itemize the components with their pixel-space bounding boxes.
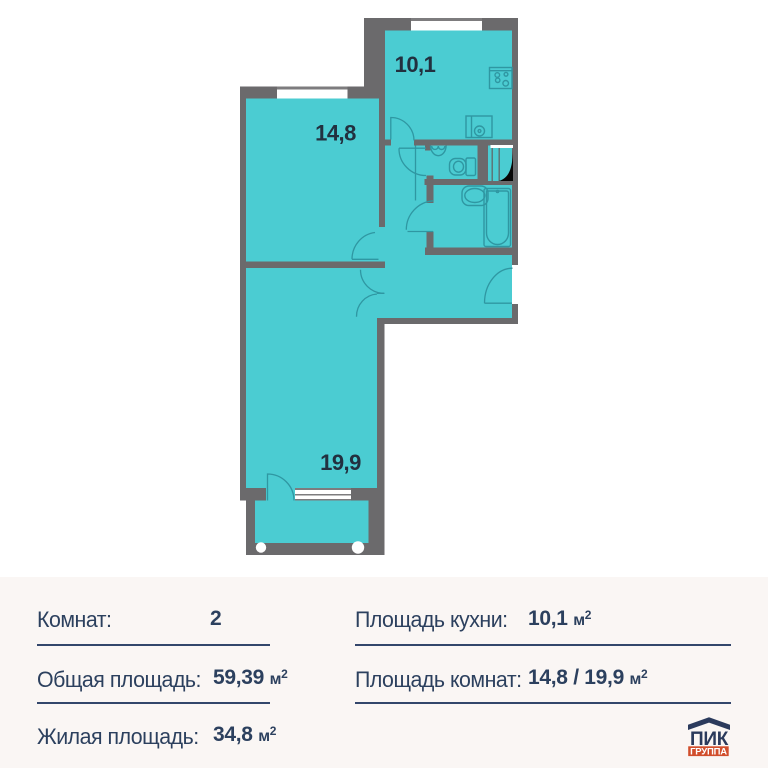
svg-text:ГРУППА: ГРУППА: [690, 747, 727, 758]
